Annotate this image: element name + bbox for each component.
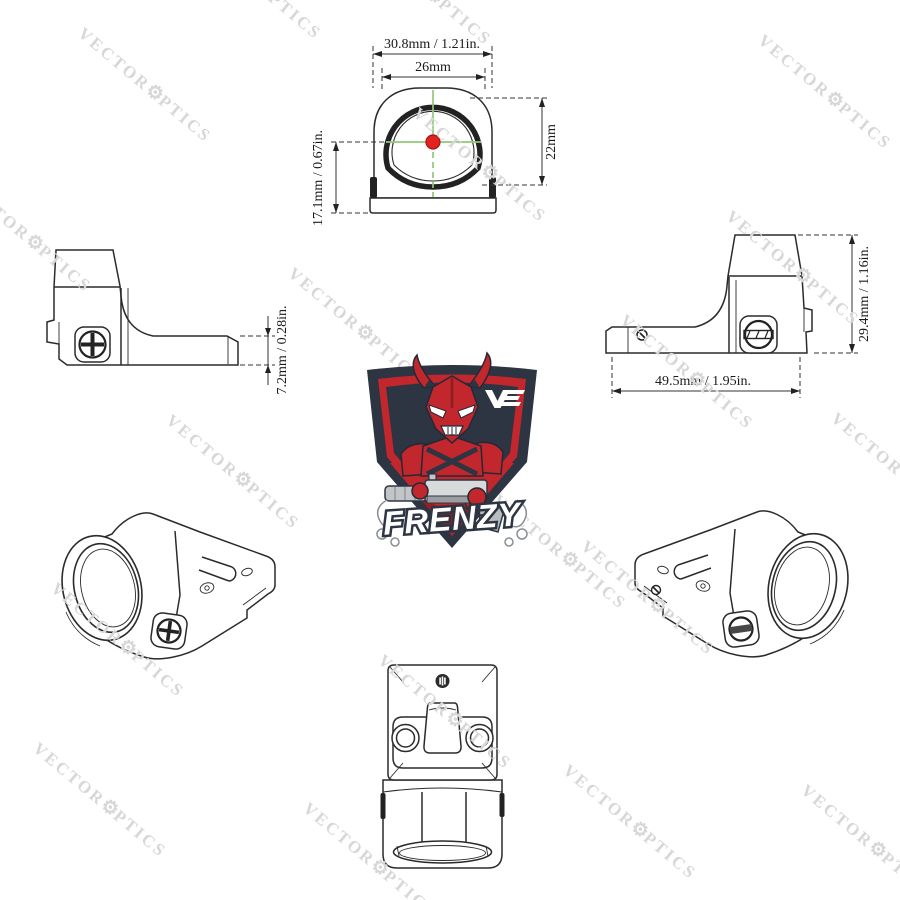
product-dimension-sheet: 30.8mm / 1.21in. 26mm: [0, 0, 900, 900]
frenzy-wordmark: FRENZY: [382, 495, 524, 542]
logo-layer: FRENZY: [0, 0, 900, 900]
frenzy-logo: FRENZY: [357, 350, 547, 562]
